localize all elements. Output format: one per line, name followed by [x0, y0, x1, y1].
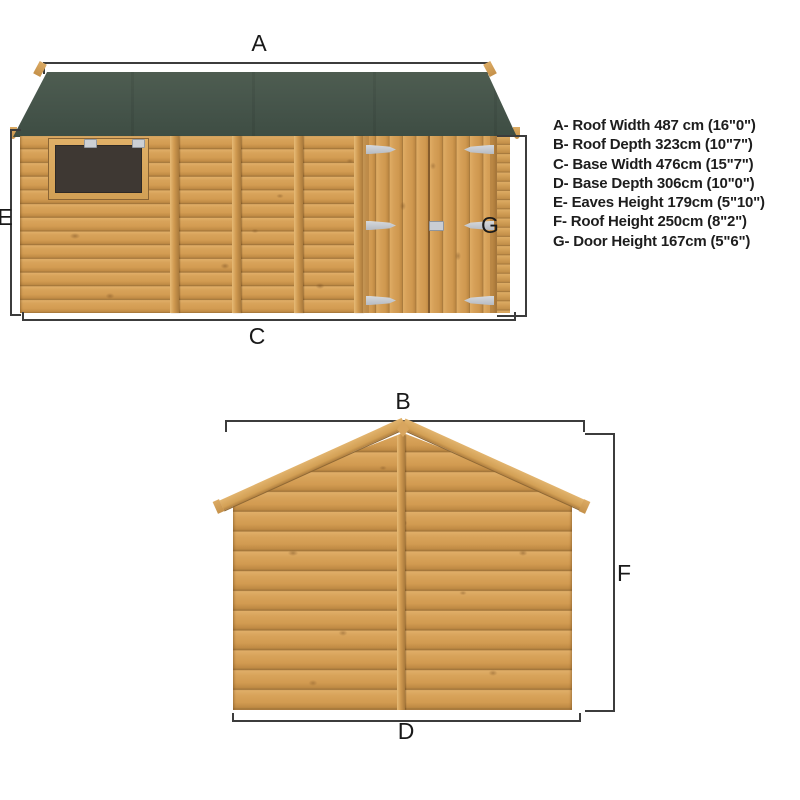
legend-item-base-width: C- Base Width 476cm (15"7") — [553, 155, 765, 174]
door-hinge-icon — [366, 221, 396, 230]
dimension-label-roof-height: F — [615, 562, 633, 585]
dimension-label-roof-depth: B — [389, 390, 417, 413]
wall-batten — [354, 136, 363, 313]
dimension-label-base-width: C — [243, 325, 271, 348]
dimension-label-door-height: G — [480, 214, 500, 237]
door-hinge-icon — [366, 296, 396, 305]
shed-front-wall — [20, 136, 510, 313]
wall-batten — [294, 136, 303, 313]
dimension-bracket-door-height — [497, 135, 527, 317]
door-handle-icon — [429, 221, 444, 231]
gable-center-batten — [397, 435, 405, 710]
dimension-legend: A- Roof Width 487 cm (16"0") B- Roof Dep… — [553, 116, 765, 251]
shed-double-door — [363, 136, 497, 313]
dimension-label-eaves-height: E — [0, 206, 14, 229]
legend-item-roof-depth: B- Roof Depth 323cm (10"7") — [553, 135, 765, 154]
shed-window-glass — [55, 145, 142, 193]
door-hinge-icon — [464, 296, 494, 305]
wall-batten — [170, 136, 179, 313]
legend-item-door-height: G- Door Height 167cm (5"6") — [553, 232, 765, 251]
shed-dimension-diagram: A — [0, 0, 800, 800]
dimension-label-base-depth: D — [392, 720, 420, 743]
dimension-label-roof-width: A — [246, 32, 272, 55]
dimension-bracket-base-width — [22, 312, 516, 321]
window-clip-icon — [84, 139, 97, 148]
legend-item-base-depth: D- Base Depth 306cm (10"0") — [553, 174, 765, 193]
door-hinge-icon — [366, 145, 396, 154]
door-hinge-icon — [464, 145, 494, 154]
wall-batten — [232, 136, 241, 313]
legend-item-roof-height: F- Roof Height 250cm (8"2") — [553, 212, 765, 231]
dimension-bracket-roof-height — [585, 433, 615, 712]
legend-item-eaves-height: E- Eaves Height 179cm (5"10") — [553, 193, 765, 212]
shed-roof-front — [13, 72, 517, 137]
window-clip-icon — [132, 139, 145, 148]
legend-item-roof-width: A- Roof Width 487 cm (16"0") — [553, 116, 765, 135]
